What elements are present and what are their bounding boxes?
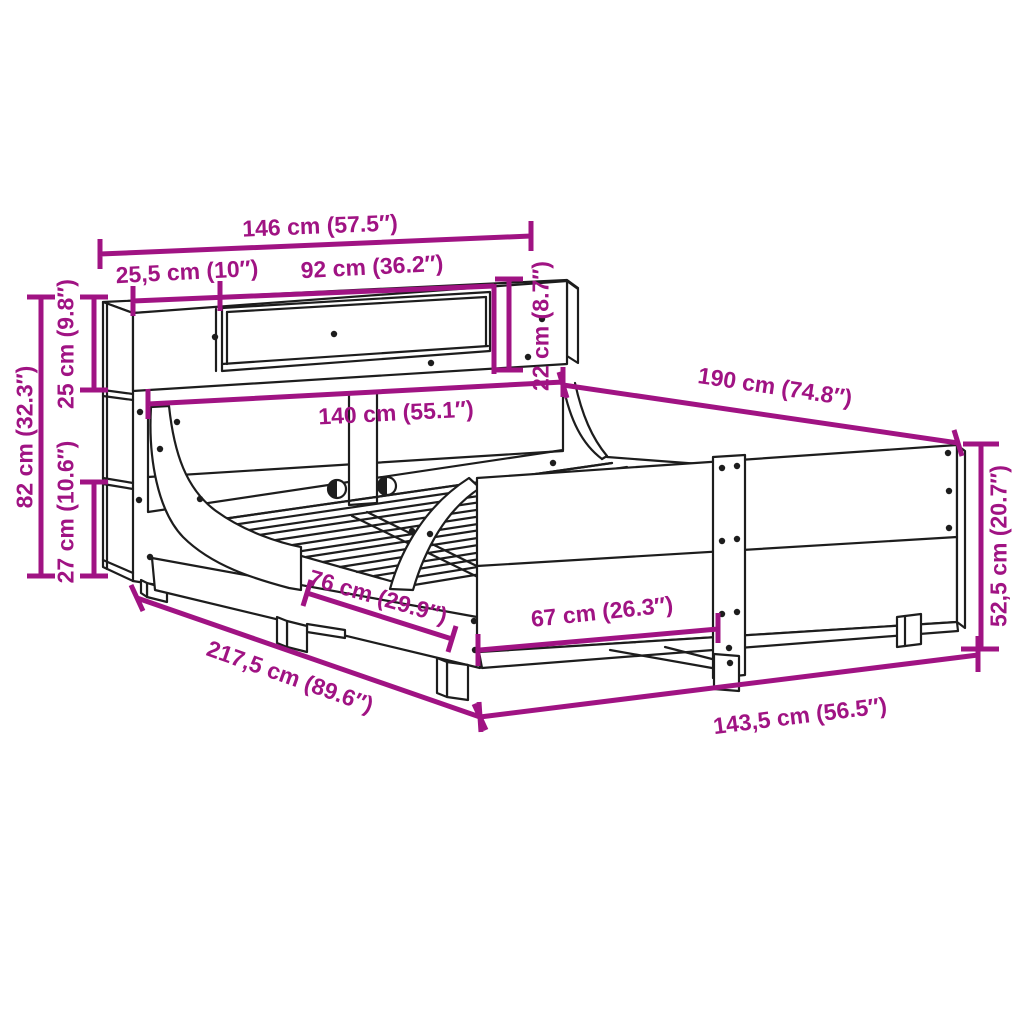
dimension-diagram: 146 cm (57.5″) 25,5 cm (10″) 92 cm (36.2… <box>0 0 1024 1024</box>
bed-frame-illustration <box>0 0 1024 1024</box>
dim-label-headboard-total-height: 82 cm (32.3″) <box>12 366 39 509</box>
footboard <box>437 445 965 700</box>
dim-label-shelf-unit-height: 25 cm (9.8″) <box>53 279 80 409</box>
dim-label-lower-section-height: 27 cm (10.6″) <box>53 441 80 584</box>
dim-label-footboard-height: 52,5 cm (20.7″) <box>986 465 1013 627</box>
dim-label-shelf-opening-height: 22 cm (8.7″) <box>528 261 555 391</box>
